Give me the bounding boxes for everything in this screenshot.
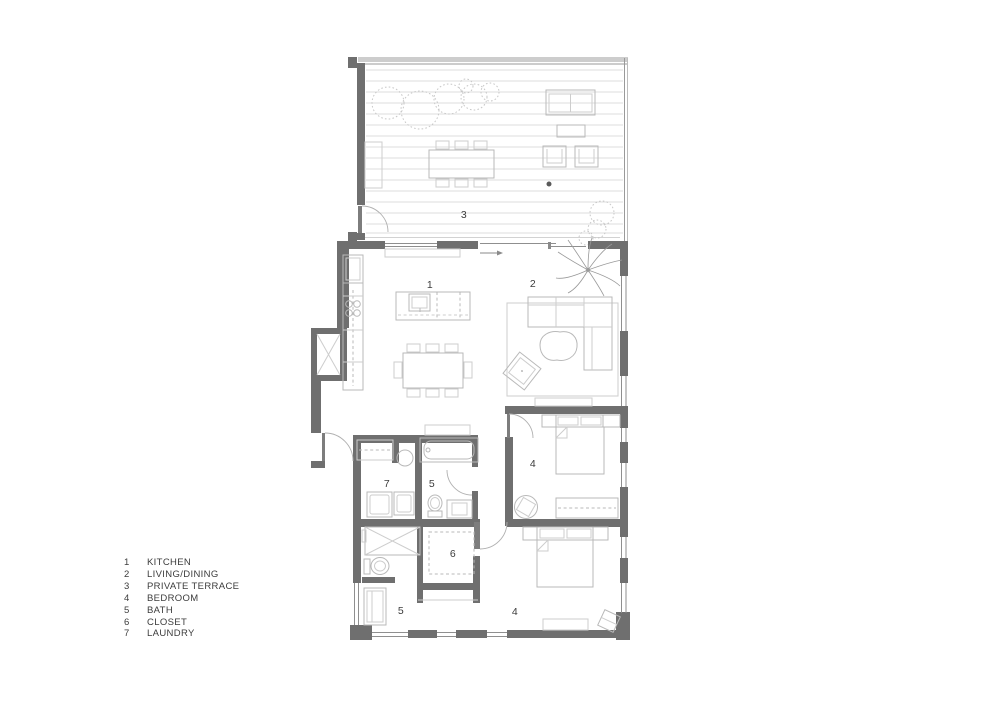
legend-item: 2 LIVING/DINING [124,569,239,581]
kitchen-island [396,292,470,320]
toilet-lower [364,558,389,575]
terrace-side-table [557,125,585,137]
shower [362,527,420,555]
bed-upper [542,415,620,474]
hall-console [425,425,470,435]
armchair [503,352,541,390]
coffee-table [540,332,577,361]
legend: 1 KITCHEN 2 LIVING/DINING 3 PRIVATE TERR… [124,557,239,640]
laundry-sink [397,450,413,466]
legend-number: 7 [124,628,147,640]
legend-number: 3 [124,581,147,593]
legend-label: KITCHEN [147,557,191,569]
room-label-bedroom-upper: 4 [530,458,536,470]
bench [543,619,588,630]
legend-number: 5 [124,605,147,617]
legend-item: 1 KITCHEN [124,557,239,569]
room-label-kitchen: 1 [427,279,433,291]
legend-item: 3 PRIVATE TERRACE [124,581,239,593]
room-label-bedroom-lower: 4 [512,606,518,618]
bedroom-lower-door [474,522,507,549]
legend-label: BATH [147,605,173,617]
terrace-planter-bench [365,142,382,188]
room-label-living-dining: 2 [530,278,536,290]
terrace-dining-set [365,141,494,188]
kitchen [343,255,472,435]
legend-item: 7 LAUNDRY [124,628,239,640]
legend-item: 6 CLOSET [124,617,239,629]
legend-label: CLOSET [147,617,187,629]
private-terrace [348,57,628,245]
legend-label: LAUNDRY [147,628,195,640]
room-label-closet: 6 [450,548,456,560]
dining-table [394,344,472,397]
vanity-sink-upper [447,500,472,518]
room-label-bath-upper: 5 [429,478,435,490]
vanity-lower [364,588,386,625]
bed-lower [523,527,608,587]
rug [507,303,618,396]
floor-drain [547,182,552,187]
legend-number: 1 [124,557,147,569]
legend-number: 6 [124,617,147,629]
wardrobe-upper [556,498,618,518]
bedroom-upper-door [507,414,533,438]
bath-lower [362,527,420,625]
legend-label: PRIVATE TERRACE [147,581,239,593]
terrace-plants [372,79,614,245]
legend-label: LIVING/DINING [147,569,219,581]
bedroom-chair [515,496,538,519]
legend-label: BEDROOM [147,593,199,605]
bedroom-lower [523,527,620,632]
living-room [503,238,622,406]
floor-plan-page: 1 2 3 4 5 7 6 5 4 1 KITCHEN 2 LIVING/DIN… [0,0,1000,714]
legend-item: 4 BEDROOM [124,593,239,605]
entry-door [322,433,353,461]
legend-number: 4 [124,593,147,605]
terrace-dining-table [429,150,494,178]
console-table [535,398,592,406]
bath-upper-door [447,470,472,495]
toilet-upper [428,495,442,517]
terrace-gate-swing [362,206,388,232]
sliding-door [480,242,586,256]
washer-dryer [367,492,414,517]
room-label-bath-lower: 5 [398,605,404,617]
room-label-laundry: 7 [384,478,390,490]
legend-item: 5 BATH [124,605,239,617]
slide-direction-arrow [497,251,503,256]
legend-number: 2 [124,569,147,581]
terrace-gate-leaf [358,206,362,233]
room-label-terrace: 3 [461,209,467,221]
